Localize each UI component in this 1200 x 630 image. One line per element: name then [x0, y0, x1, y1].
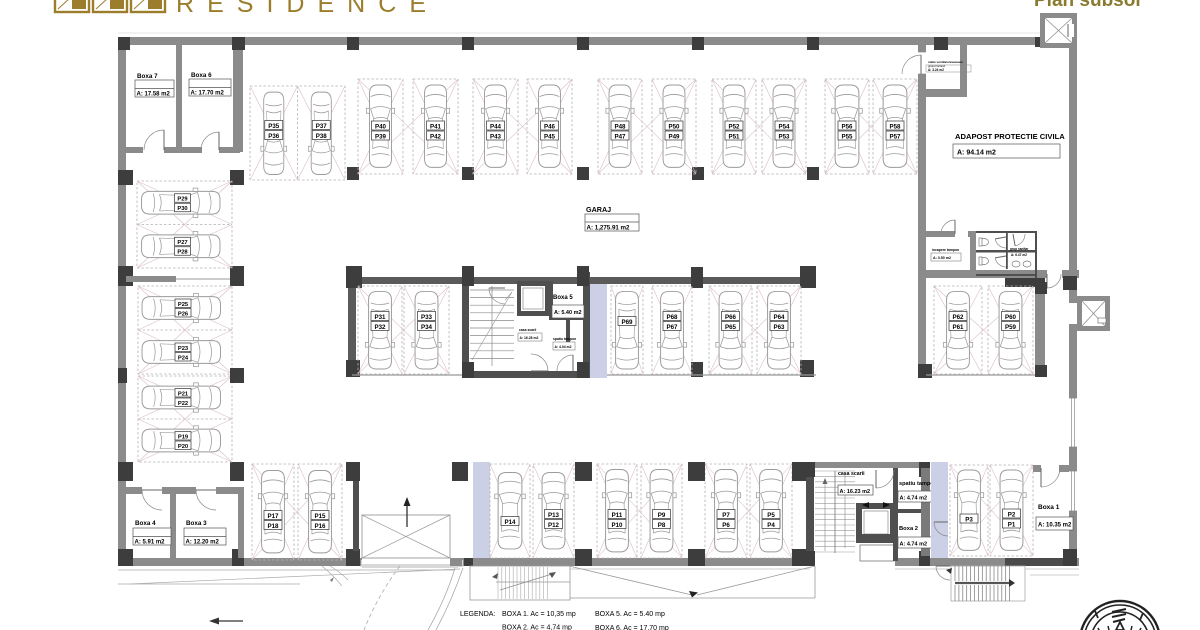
svg-text:P64: P64	[773, 314, 785, 321]
svg-text:Boxa 5: Boxa 5	[553, 295, 573, 301]
svg-text:GARAJ: GARAJ	[586, 205, 611, 214]
svg-text:P14: P14	[504, 519, 516, 526]
svg-text:P39: P39	[375, 133, 387, 140]
svg-text:P56: P56	[841, 123, 853, 130]
svg-text:P51: P51	[728, 133, 740, 140]
svg-text:P40: P40	[375, 123, 387, 130]
svg-text:casa scarii: casa scarii	[838, 471, 865, 477]
svg-text:P21: P21	[178, 391, 189, 397]
svg-text:P19: P19	[178, 434, 189, 440]
svg-text:P66: P66	[725, 314, 737, 321]
svg-text:P13: P13	[548, 512, 560, 519]
svg-text:P43: P43	[490, 133, 502, 140]
svg-text:A: 16.23 m2: A: 16.23 m2	[840, 489, 871, 495]
svg-text:P48: P48	[614, 123, 626, 130]
svg-text:A: 4.74 m2: A: 4.74 m2	[900, 496, 928, 502]
svg-text:A: 12.20 m2: A: 12.20 m2	[186, 539, 220, 545]
svg-text:P52: P52	[728, 123, 740, 130]
svg-text:P11: P11	[612, 512, 623, 519]
svg-text:LEGENDA:: LEGENDA:	[460, 611, 495, 618]
svg-text:P63: P63	[773, 324, 785, 331]
svg-text:P16: P16	[314, 523, 326, 530]
svg-text:P62: P62	[952, 314, 964, 321]
svg-text:P15: P15	[314, 513, 326, 520]
svg-text:A: 17.58 m2: A: 17.58 m2	[137, 91, 171, 97]
svg-text:P38: P38	[316, 133, 328, 140]
svg-text:P1: P1	[1008, 521, 1016, 528]
svg-text:Boxa 6: Boxa 6	[191, 72, 212, 79]
svg-text:A: 1,275.91 m2: A: 1,275.91 m2	[587, 224, 631, 231]
svg-text:P18: P18	[267, 523, 279, 530]
svg-text:Boxa 7: Boxa 7	[137, 73, 158, 80]
svg-text:P24: P24	[178, 355, 189, 361]
svg-text:A: 5.91 m2: A: 5.91 m2	[135, 539, 166, 545]
svg-text:ADAPOST PROTECTIE CIVILA: ADAPOST PROTECTIE CIVILA	[955, 132, 1065, 141]
svg-text:P54: P54	[778, 123, 790, 130]
svg-text:P42: P42	[430, 133, 442, 140]
svg-text:P60: P60	[1005, 314, 1017, 321]
svg-text:P4: P4	[767, 522, 775, 529]
svg-text:P58: P58	[889, 123, 901, 130]
svg-text:P22: P22	[178, 401, 188, 407]
svg-text:P44: P44	[490, 123, 502, 130]
svg-text:P55: P55	[841, 133, 853, 140]
svg-text:RESIDENCE: RESIDENCE	[176, 0, 426, 18]
svg-text:P8: P8	[658, 522, 666, 529]
svg-text:P17: P17	[267, 513, 279, 520]
svg-text:P3: P3	[965, 516, 973, 523]
svg-text:P9: P9	[658, 512, 666, 519]
svg-text:P10: P10	[611, 522, 623, 529]
svg-text:P69: P69	[621, 319, 633, 326]
svg-text:P41: P41	[430, 123, 442, 130]
svg-text:P46: P46	[544, 123, 556, 130]
svg-text:P45: P45	[544, 133, 556, 140]
svg-text:P35: P35	[268, 123, 280, 130]
svg-text:BOXA 6. Ac = 17.70 mp: BOXA 6. Ac = 17.70 mp	[595, 625, 669, 630]
svg-text:P67: P67	[666, 324, 678, 331]
svg-text:A: 4.74 m2: A: 4.74 m2	[900, 542, 928, 548]
svg-text:BOXA 5. Ac = 5.40 mp: BOXA 5. Ac = 5.40 mp	[595, 611, 665, 618]
svg-text:A: 3.24 m2: A: 3.24 m2	[928, 68, 944, 72]
svg-text:P28: P28	[177, 250, 188, 256]
svg-text:spatiu tampon: spatiu tampon	[553, 337, 576, 341]
svg-text:P59: P59	[1005, 324, 1017, 331]
svg-text:P29: P29	[177, 197, 188, 203]
svg-text:P68: P68	[666, 314, 678, 321]
svg-text:P31: P31	[374, 314, 386, 321]
svg-text:A: 6.47 m2: A: 6.47 m2	[1011, 253, 1027, 257]
svg-text:Boxa 2: Boxa 2	[899, 526, 918, 532]
svg-text:A: 3.50 m2: A: 3.50 m2	[933, 256, 951, 260]
svg-text:A: 16.28 m2: A: 16.28 m2	[520, 336, 539, 340]
svg-text:P6: P6	[722, 522, 730, 529]
svg-text:Boxa 1: Boxa 1	[1038, 504, 1060, 511]
svg-text:P32: P32	[374, 324, 386, 331]
svg-text:P37: P37	[316, 123, 328, 130]
svg-text:A: 4.04 m2: A: 4.04 m2	[555, 345, 572, 349]
svg-text:A: 10.35 m2: A: 10.35 m2	[1038, 523, 1072, 529]
svg-text:P53: P53	[778, 133, 790, 140]
svg-text:P2: P2	[1008, 511, 1016, 518]
svg-text:incapere tampon: incapere tampon	[932, 248, 959, 252]
svg-text:BOXA 1. Ac = 10,35 mp: BOXA 1. Ac = 10,35 mp	[502, 611, 576, 618]
svg-text:P7: P7	[722, 512, 730, 519]
svg-text:P61: P61	[952, 324, 964, 331]
svg-text:P57: P57	[889, 133, 901, 140]
svg-text:Boxa 3: Boxa 3	[186, 520, 207, 527]
svg-text:A: 5.40 m2: A: 5.40 m2	[554, 310, 582, 316]
svg-text:A: 17.70 m2: A: 17.70 m2	[191, 90, 225, 96]
svg-text:P5: P5	[767, 512, 775, 519]
svg-text:P30: P30	[177, 206, 187, 212]
svg-text:P65: P65	[725, 324, 737, 331]
svg-text:P20: P20	[178, 444, 188, 450]
svg-text:statie ventilare/evacuare: statie ventilare/evacuare	[928, 60, 963, 64]
svg-text:P34: P34	[421, 324, 433, 331]
svg-text:P50: P50	[668, 123, 680, 130]
svg-text:P25: P25	[178, 302, 189, 308]
svg-text:P47: P47	[614, 133, 626, 140]
svg-text:P12: P12	[548, 522, 560, 529]
svg-text:Plan subsol: Plan subsol	[1034, 0, 1141, 11]
svg-text:Boxa 4: Boxa 4	[135, 520, 156, 527]
svg-text:BOXA 2. Ac = 4,74 mp: BOXA 2. Ac = 4,74 mp	[502, 625, 572, 630]
svg-text:casa scarii: casa scarii	[519, 328, 536, 332]
svg-text:grup sanitar: grup sanitar	[1010, 247, 1029, 251]
svg-text:P23: P23	[178, 346, 189, 352]
svg-text:A: 94.14 m2: A: 94.14 m2	[957, 150, 996, 157]
svg-text:P27: P27	[177, 240, 187, 246]
svg-text:P33: P33	[421, 314, 433, 321]
svg-text:P49: P49	[668, 133, 680, 140]
svg-text:P26: P26	[178, 311, 189, 317]
svg-text:P36: P36	[268, 133, 280, 140]
